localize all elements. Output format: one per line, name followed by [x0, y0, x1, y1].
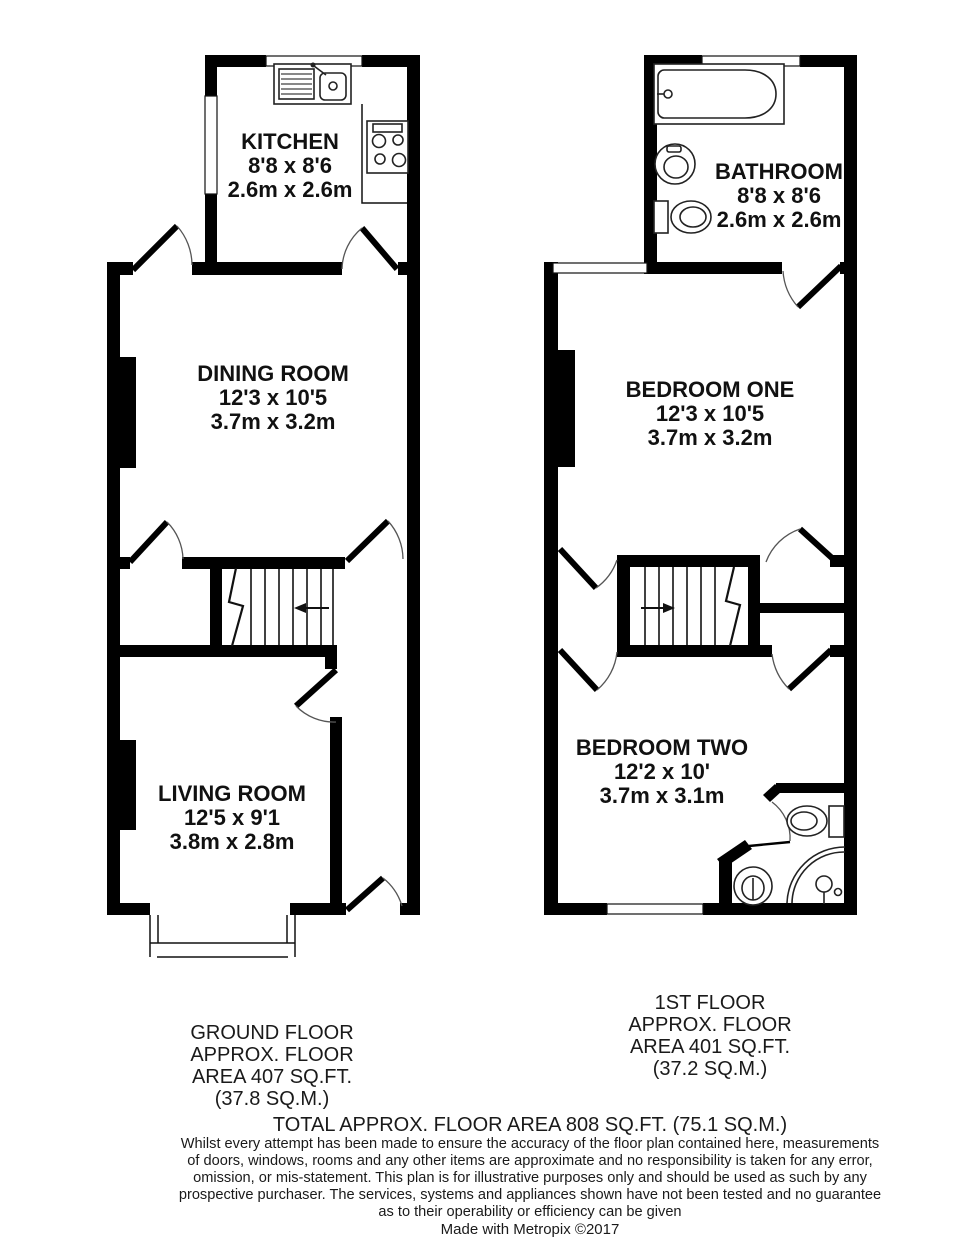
- dining-hall-right-door-leaf: [347, 521, 388, 561]
- stair-break-line: [726, 567, 740, 646]
- ground-floor-label-line3: AREA 407 SQ.FT.: [192, 1066, 352, 1088]
- shower-head: [816, 876, 832, 892]
- first-stairs: [641, 567, 740, 646]
- toilet-cistern: [654, 201, 668, 233]
- kitchen-imperial: 8'8 x 8'6: [248, 153, 332, 178]
- stair-break-line: [229, 568, 243, 646]
- kitchen-side-window: [205, 96, 217, 194]
- bedroom-one-window: [553, 263, 647, 273]
- front-door-leaf: [347, 878, 383, 910]
- disclaimer-line3: omission, or mis-statement. This plan is…: [193, 1170, 868, 1186]
- ground-floor-label-line2: APPROX. FLOOR: [190, 1044, 353, 1066]
- bathtub: [654, 64, 784, 124]
- bathroom-door-leaf: [798, 266, 841, 307]
- cupboard-divider-wall: [748, 603, 845, 613]
- dining-metric: 3.7m x 3.2m: [211, 409, 336, 434]
- bathroom-metric: 2.6m x 2.6m: [717, 207, 842, 232]
- dining-imperial: 12'3 x 10'5: [219, 385, 327, 410]
- disclaimer-line2: of doors, windows, rooms and any other i…: [187, 1153, 872, 1169]
- bedroom-one-metric: 3.7m x 3.2m: [648, 425, 773, 450]
- wc-door-leaf: [749, 842, 790, 846]
- disclaimer-line4: prospective purchaser. The services, sys…: [179, 1187, 881, 1203]
- rear-door-leaf: [133, 226, 177, 270]
- stair-steps: [645, 567, 715, 645]
- toilet-bowl: [671, 201, 711, 233]
- floorplan-canvas: KITCHEN 8'8 x 8'6 2.6m x 2.6m DINING ROO…: [0, 0, 980, 1237]
- floor-area-labels: GROUND FLOOR APPROX. FLOOR AREA 407 SQ.F…: [190, 992, 791, 1110]
- bedroom-one-door-leaf: [560, 549, 596, 588]
- bedroom-one-imperial: 12'3 x 10'5: [656, 401, 764, 426]
- bedroom-two-cupboard-door-leaf: [789, 650, 831, 689]
- dining-chimney-breast: [120, 357, 136, 468]
- living-chimney-breast: [120, 740, 136, 830]
- bedroom-two-door-leaf: [560, 650, 597, 690]
- bay-window: [150, 915, 295, 957]
- bedroom-one-cupboard-door-leaf: [800, 529, 832, 558]
- first-floor-label-line1: 1ST FLOOR: [655, 992, 766, 1014]
- footer: TOTAL APPROX. FLOOR AREA 808 SQ.FT. (75.…: [179, 1114, 881, 1237]
- bedroom-one-label: BEDROOM ONE: [626, 377, 795, 402]
- living-room-door-leaf: [296, 670, 336, 706]
- first-floor-label-line2: APPROX. FLOOR: [628, 1014, 791, 1036]
- ground-room-labels: KITCHEN 8'8 x 8'6 2.6m x 2.6m DINING ROO…: [158, 129, 352, 854]
- kitchen-door-leaf: [362, 228, 397, 269]
- bathroom-imperial: 8'8 x 8'6: [737, 183, 821, 208]
- dining-hall-left-door-leaf: [130, 522, 167, 562]
- dining-label: DINING ROOM: [197, 361, 349, 386]
- ground-floor-plan: KITCHEN 8'8 x 8'6 2.6m x 2.6m DINING ROO…: [107, 55, 420, 957]
- kitchen-label: KITCHEN: [241, 129, 339, 154]
- bedroom-two-metric: 3.7m x 3.1m: [600, 783, 725, 808]
- disclaimer-line5: as to their operability or efficiency ca…: [378, 1204, 681, 1220]
- bedroom-one-chimney-breast: [558, 350, 575, 467]
- living-label: LIVING ROOM: [158, 781, 306, 806]
- ground-stairs: [229, 568, 333, 646]
- first-floor-label-line3: AREA 401 SQ.FT.: [630, 1036, 790, 1058]
- bedroom-two-window: [607, 904, 703, 914]
- bathroom-label: BATHROOM: [715, 159, 843, 184]
- floorplan-page: KITCHEN 8'8 x 8'6 2.6m x 2.6m DINING ROO…: [0, 0, 980, 1237]
- wc-toilet-bowl: [787, 806, 827, 836]
- living-imperial: 12'5 x 9'1: [184, 805, 280, 830]
- wc-fixtures: [734, 806, 845, 905]
- living-metric: 3.8m x 2.8m: [170, 829, 295, 854]
- disclaimer-line1: Whilst every attempt has been made to en…: [181, 1136, 879, 1152]
- first-floor-plan: BATHROOM 8'8 x 8'6 2.6m x 2.6m BEDROOM O…: [544, 55, 857, 915]
- bedroom-two-label: BEDROOM TWO: [576, 735, 748, 760]
- first-floor-label-line4: (37.2 SQ.M.): [653, 1058, 767, 1080]
- total-area-label: TOTAL APPROX. FLOOR AREA 808 SQ.FT. (75.…: [273, 1114, 787, 1136]
- credit-label: Made with Metropix ©2017: [441, 1221, 620, 1237]
- first-room-labels: BATHROOM 8'8 x 8'6 2.6m x 2.6m BEDROOM O…: [576, 159, 843, 808]
- ground-floor-label-line1: GROUND FLOOR: [190, 1022, 353, 1044]
- ground-floor-label-line4: (37.8 SQ.M.): [215, 1088, 329, 1110]
- wc-toilet-cistern: [829, 806, 844, 837]
- kitchen-metric: 2.6m x 2.6m: [228, 177, 353, 202]
- bedroom-two-imperial: 12'2 x 10': [614, 759, 710, 784]
